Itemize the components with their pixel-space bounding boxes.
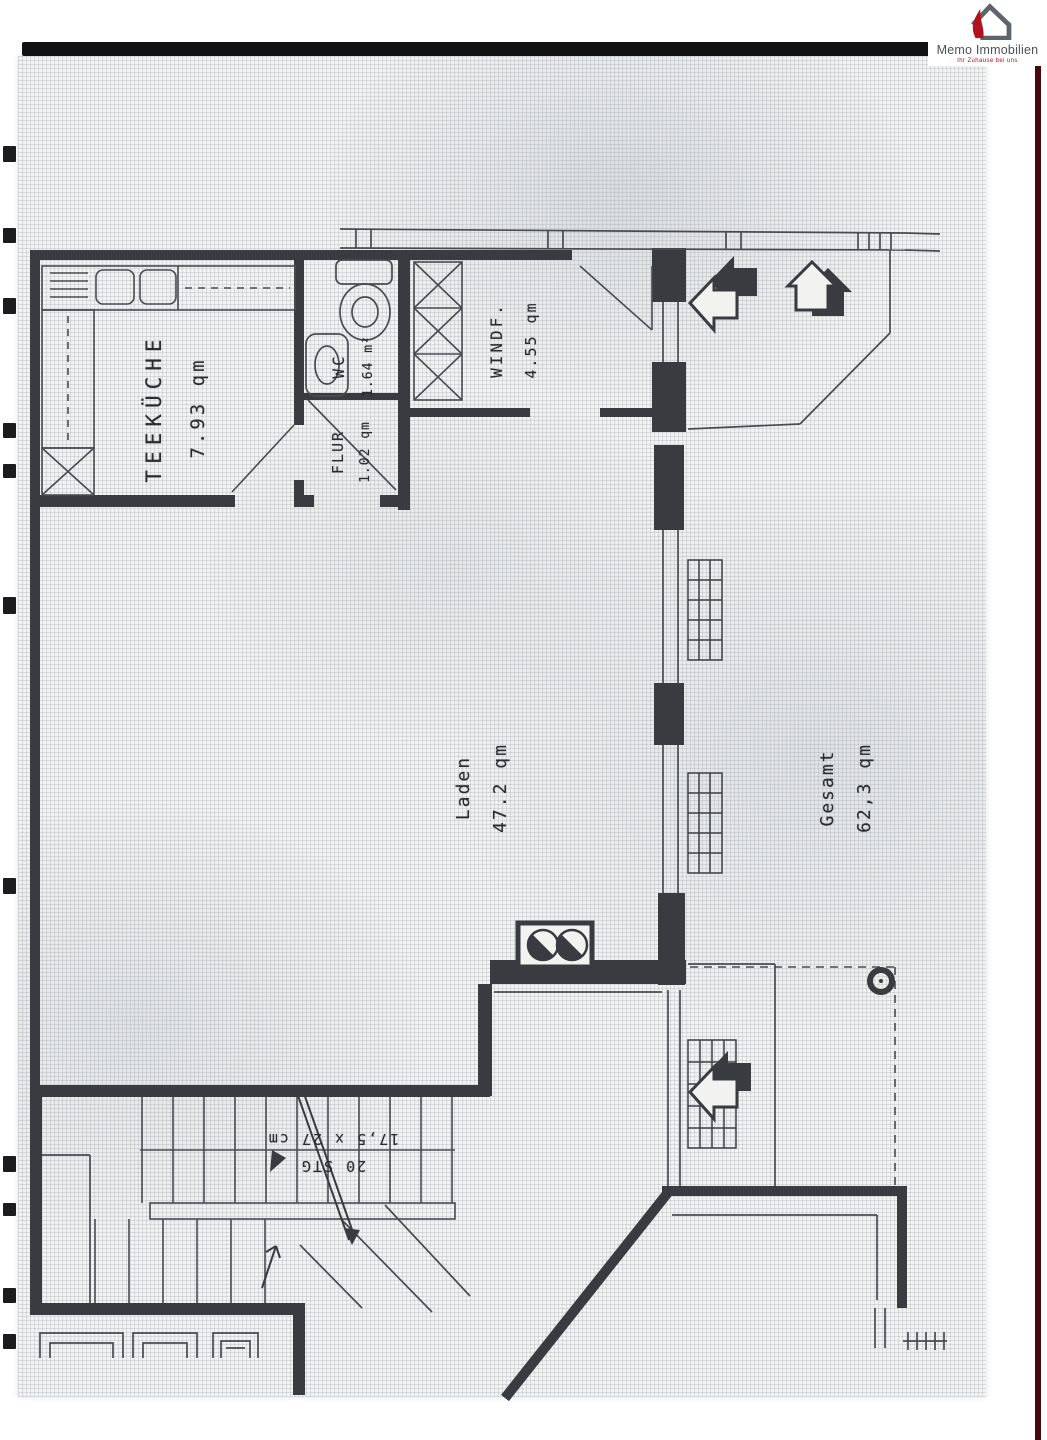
stairs-label: 20 STG 17,5 x 27 cm xyxy=(267,1125,399,1179)
window-grill xyxy=(688,560,736,1148)
agency-tagline: Ihr Zuhause bei uns xyxy=(928,58,1047,64)
stairs-step-size: 17,5 x 27 cm xyxy=(267,1125,399,1152)
room-label-windfang: WINDF. 4.55 qm xyxy=(480,301,548,378)
room-area: 4.55 qm xyxy=(514,301,548,378)
lower-unit-fixtures xyxy=(40,1333,258,1358)
scanned-floor-plan-page: TEEKÜCHE 7.93 qm WC 1.64 m² FLUR 1.02 qm… xyxy=(0,0,1047,1440)
room-area: 47.2 qm xyxy=(482,743,519,833)
room-area: 1.64 m² xyxy=(354,335,384,397)
stair-direction-arrow xyxy=(262,1088,360,1288)
agency-name: Memo Immobilien xyxy=(928,43,1047,57)
room-name: WC xyxy=(324,335,354,397)
total-area-label: Gesamt 62,3 qm xyxy=(809,743,883,833)
room-area: 1.02 qm xyxy=(352,421,379,483)
total-label: Gesamt xyxy=(809,743,846,833)
entrance-arrow-icon xyxy=(788,262,852,316)
room-label-wc: WC 1.64 m² xyxy=(324,335,384,397)
room-label-laden: Laden 47.2 qm xyxy=(445,743,519,833)
entrance-arrow-icon xyxy=(690,1051,751,1119)
room-label-flur: FLUR 1.02 qm xyxy=(325,421,379,483)
floor-plan-drawing xyxy=(0,0,1047,1440)
wall-diagonal xyxy=(505,1190,670,1398)
room-name: FLUR xyxy=(325,421,352,483)
room-name: WINDF. xyxy=(480,301,514,378)
room-name: Laden xyxy=(445,743,482,833)
stairs-count: 20 STG xyxy=(267,1152,399,1179)
column-symbol xyxy=(870,970,892,992)
meter-box xyxy=(518,923,592,967)
room-name: TEEKÜCHE xyxy=(132,333,176,482)
room-label-teekueche: TEEKÜCHE 7.93 qm xyxy=(132,333,220,482)
agency-logo: Memo Immobilien Ihr Zuhause bei uns xyxy=(928,0,1047,66)
entrance-arrow-icon xyxy=(690,256,757,330)
house-icon xyxy=(959,0,1017,40)
room-area: 7.93 qm xyxy=(176,333,220,482)
total-area: 62,3 qm xyxy=(846,743,883,833)
